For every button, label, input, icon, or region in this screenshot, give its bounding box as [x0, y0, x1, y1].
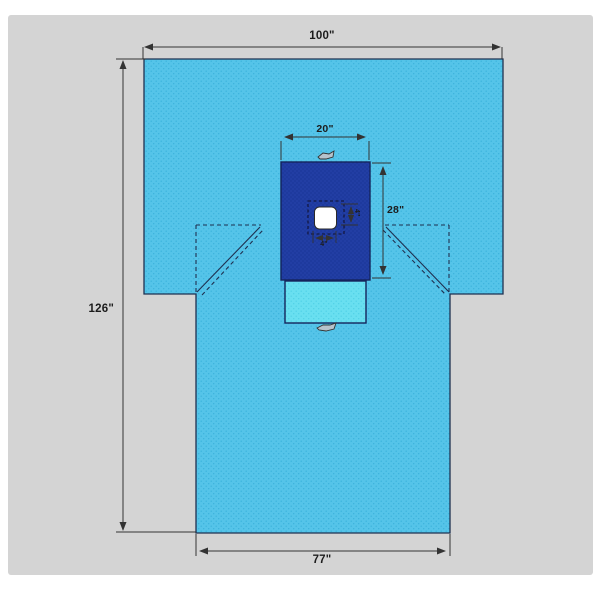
drape-diagram-stage: 100" 126" 77" 20" 28" 4" 4"	[0, 0, 600, 600]
label-fenestration-height: 4"	[353, 209, 360, 217]
instrument-pouch	[285, 281, 366, 323]
label-bottom-width: 77"	[272, 554, 372, 566]
label-overall-width: 100"	[272, 30, 372, 42]
dimension-overall-width	[143, 47, 502, 59]
label-fenestration-width: 4"	[312, 241, 336, 248]
label-reinforcement-width: 20"	[285, 123, 365, 135]
fenestration	[315, 207, 337, 229]
dimension-bottom-width	[196, 534, 450, 556]
label-overall-length: 126"	[72, 303, 114, 315]
label-reinforcement-height: 28"	[387, 204, 404, 216]
drape-diagram	[0, 0, 600, 600]
